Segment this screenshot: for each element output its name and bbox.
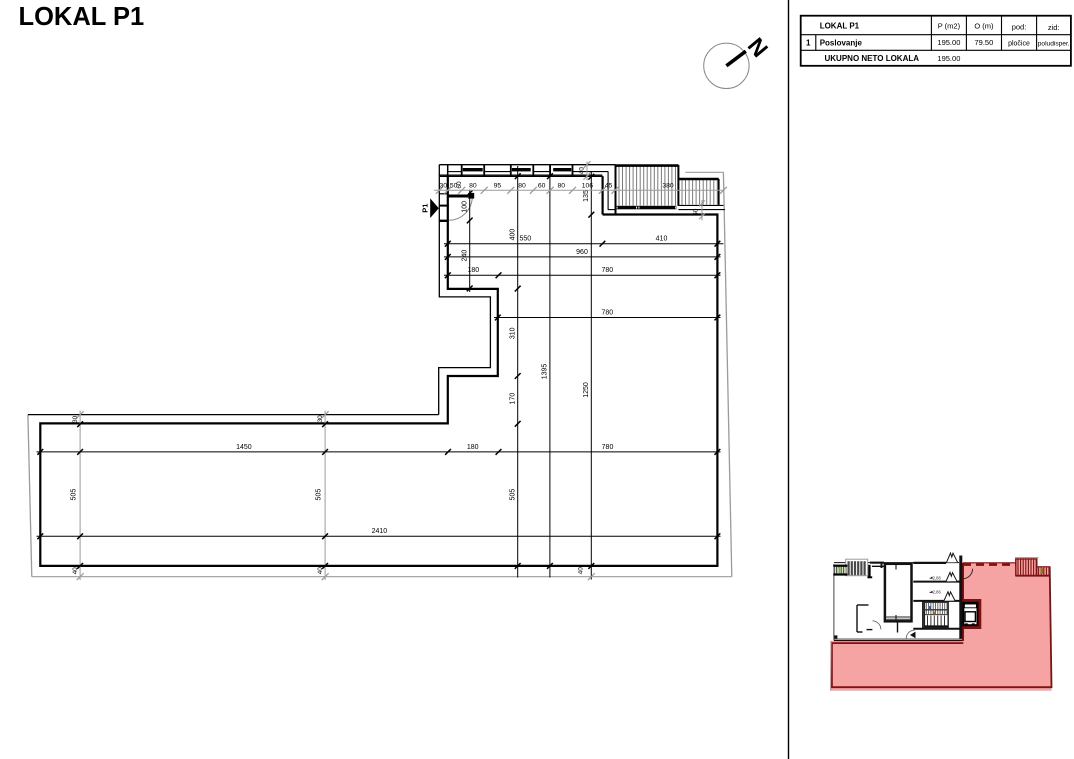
svg-text:106: 106 <box>582 182 594 189</box>
svg-text:80: 80 <box>518 182 526 189</box>
svg-text:170: 170 <box>509 393 516 405</box>
svg-text:180: 180 <box>467 444 479 451</box>
svg-text:O (m): O (m) <box>974 21 994 30</box>
svg-text:30: 30 <box>317 415 324 423</box>
svg-text:80: 80 <box>469 182 477 189</box>
svg-text:2410: 2410 <box>372 528 388 535</box>
svg-text:Poslovanje: Poslovanje <box>820 39 863 48</box>
svg-text:40: 40 <box>72 567 79 575</box>
svg-text:100: 100 <box>461 201 468 213</box>
svg-text:60: 60 <box>693 208 700 216</box>
svg-text:LOKAL P1: LOKAL P1 <box>19 3 145 31</box>
svg-text:95: 95 <box>494 182 502 189</box>
svg-text:960: 960 <box>576 249 588 256</box>
svg-text:P (m2): P (m2) <box>938 21 961 30</box>
svg-text:pločice: pločice <box>1008 40 1030 47</box>
svg-text:80: 80 <box>558 182 566 189</box>
svg-text:poludisper.: poludisper. <box>1038 40 1070 47</box>
svg-text:pod:: pod: <box>1012 22 1027 31</box>
svg-text:30: 30 <box>72 415 79 423</box>
svg-text:1: 1 <box>806 39 811 48</box>
svg-text:400: 400 <box>509 229 516 241</box>
svg-text:1395: 1395 <box>542 364 549 380</box>
svg-text:195.00: 195.00 <box>937 54 960 63</box>
svg-text:505: 505 <box>71 489 78 501</box>
svg-text:40: 40 <box>579 167 586 175</box>
svg-text:780: 780 <box>601 309 613 316</box>
svg-text:310: 310 <box>509 327 516 339</box>
svg-text:40: 40 <box>578 567 585 575</box>
svg-text:P1: P1 <box>421 204 430 213</box>
svg-text:1250: 1250 <box>583 382 590 398</box>
svg-text:1450: 1450 <box>236 444 252 451</box>
svg-text:505: 505 <box>316 489 323 501</box>
svg-text:60: 60 <box>456 181 463 189</box>
svg-text:240: 240 <box>461 250 468 262</box>
svg-text:79.50: 79.50 <box>975 38 994 47</box>
svg-text:40: 40 <box>317 567 324 575</box>
svg-text:LOKAL P1: LOKAL P1 <box>820 21 860 30</box>
svg-text:780: 780 <box>602 444 614 451</box>
svg-text:505: 505 <box>509 489 516 501</box>
svg-text:550: 550 <box>519 236 531 243</box>
svg-text:135: 135 <box>583 190 590 202</box>
svg-text:380: 380 <box>662 182 674 189</box>
svg-text:410: 410 <box>656 235 668 242</box>
svg-text:60: 60 <box>538 182 546 189</box>
svg-text:zid:: zid: <box>1048 23 1060 32</box>
svg-text:195.00: 195.00 <box>937 38 960 47</box>
svg-text:780: 780 <box>601 267 613 274</box>
svg-text:UKUPNO NETO LOKALA: UKUPNO NETO LOKALA <box>825 54 920 63</box>
svg-text:30: 30 <box>440 182 448 189</box>
svg-text:45: 45 <box>605 182 613 189</box>
